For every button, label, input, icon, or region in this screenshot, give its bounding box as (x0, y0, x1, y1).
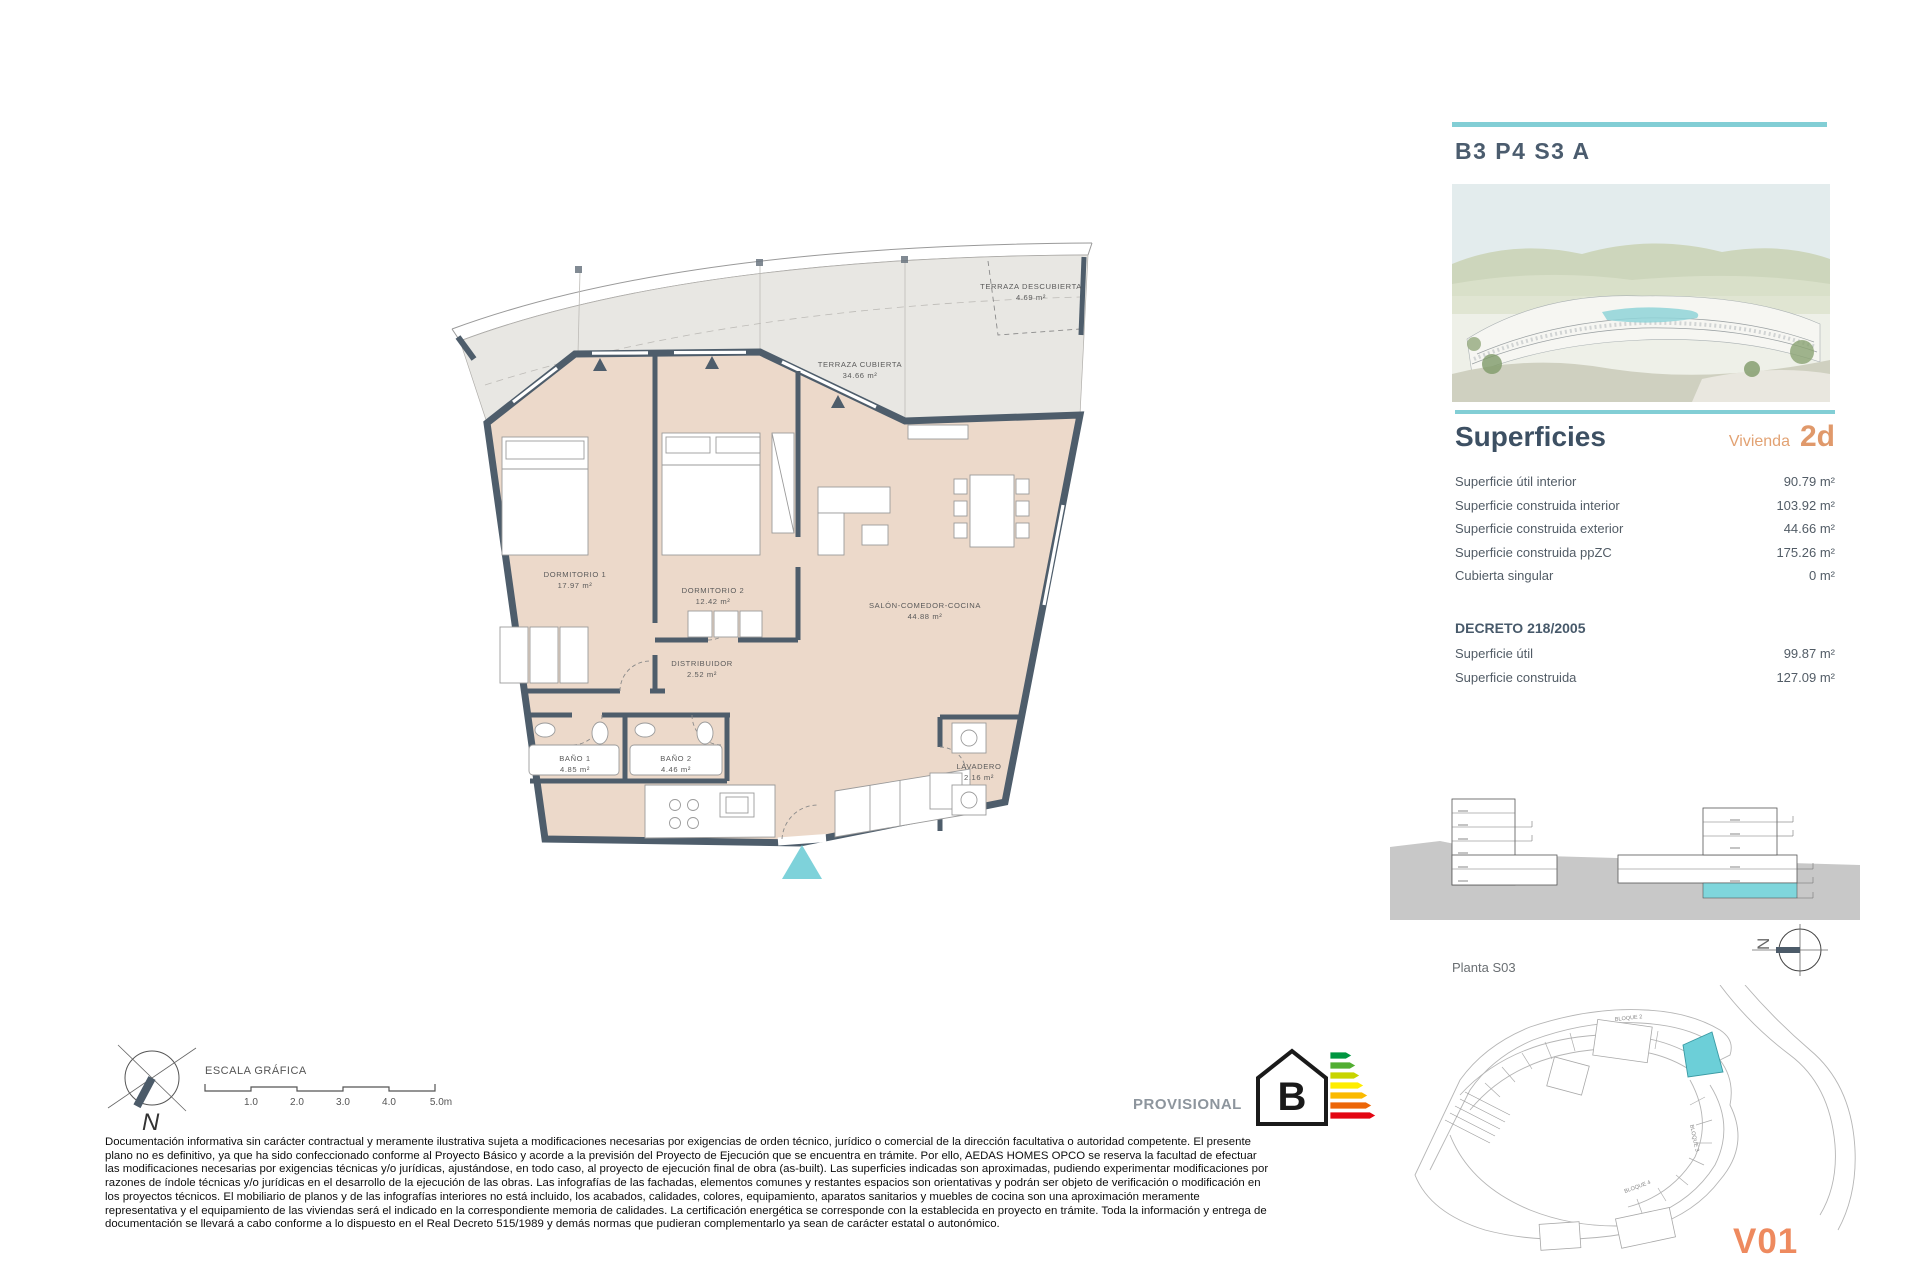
row-value: 99.87 m² (1784, 646, 1835, 670)
superficies-header: Superficies Vivienda 2d (1455, 420, 1835, 454)
disclaimer-line: los proyectos técnicos. El mobiliario de… (105, 1191, 1385, 1205)
scale-tick: 3.0 (336, 1097, 350, 1108)
building-section-diagram (1390, 785, 1860, 920)
site-compass: N (1740, 922, 1835, 984)
table-row: Superficie útil 99.87 m² (1455, 646, 1835, 670)
scale-tick: 2.0 (290, 1097, 304, 1108)
floor-level-label: Planta S03 (1452, 960, 1516, 975)
table-row: Superficie construida exterior 44.66 m² (1455, 521, 1835, 545)
row-value: 175.26 m² (1776, 545, 1835, 569)
room-label-dormitorio-2: DORMITORIO 2 (682, 586, 745, 595)
plan-sheet-page: { "colors": { "teal_accent": "#82ced5", … (0, 0, 1920, 1280)
room-label-bano-1: BAÑO 1 (559, 754, 590, 763)
north-letter: N (142, 1109, 160, 1135)
row-label: Superficie útil interior (1455, 474, 1576, 498)
room-area-salon: 44.88 m² (908, 612, 943, 621)
plan-compass: N (100, 1040, 210, 1135)
row-label: Superficie construida (1455, 670, 1576, 694)
row-value: 0 m² (1809, 568, 1835, 592)
row-label: Superficie construida exterior (1455, 521, 1623, 545)
superficies-title: Superficies (1455, 421, 1606, 453)
room-label-salon: SALÓN-COMEDOR-COCINA (869, 601, 981, 610)
energy-rating-bars (1330, 1052, 1376, 1119)
superficies-accent-bar (1455, 410, 1835, 414)
compass-needle (1776, 947, 1800, 953)
compass-north-letter: N (1754, 938, 1773, 950)
disclaimer-line: Documentación informativa sin carácter c… (105, 1136, 1385, 1150)
row-value: 44.66 m² (1784, 521, 1835, 545)
room-area-terraza-cubierta: 34.66 m² (843, 371, 878, 380)
room-area-bano-2: 4.46 m² (661, 765, 691, 774)
disclaimer-line: las modificaciones necesarias por exigen… (105, 1163, 1385, 1177)
room-area-distribuidor: 2.52 m² (687, 670, 717, 679)
energy-certificate-icon: B (1248, 1044, 1383, 1129)
unit-code-title: B3 P4 S3 A (1455, 138, 1591, 165)
block-label-2: BLOQUE 2 (1615, 1014, 1643, 1023)
decreto-table: Superficie útil 99.87 m² Superficie cons… (1455, 646, 1835, 693)
row-value: 127.09 m² (1776, 670, 1835, 694)
energy-rating-letter: B (1278, 1075, 1307, 1119)
sheet-version-code: V01 (1733, 1222, 1798, 1262)
room-label-distribuidor: DISTRIBUIDOR (671, 659, 733, 668)
room-area-dormitorio-2: 12.42 m² (696, 597, 731, 606)
provisional-label: PROVISIONAL (1133, 1096, 1242, 1113)
room-area-bano-1: 4.85 m² (560, 765, 590, 774)
disclaimer-line: representativa y el equipamiento de las … (105, 1205, 1385, 1219)
table-row: Superficie construida interior 103.92 m² (1455, 498, 1835, 522)
block-label-3: BLOQUE 3 (1688, 1124, 1700, 1152)
highlighted-floor-s03 (1703, 883, 1797, 898)
scale-tick: 1.0 (244, 1097, 258, 1108)
row-label: Superficie construida ppZC (1455, 545, 1612, 569)
table-row: Superficie útil interior 90.79 m² (1455, 474, 1835, 498)
block-label-4: BLOQUE 4 (1624, 1180, 1652, 1195)
table-row: Superficie construida 127.09 m² (1455, 670, 1835, 694)
room-area-dormitorio-1: 17.97 m² (558, 581, 593, 590)
row-value: 103.92 m² (1776, 498, 1835, 522)
building-render-image (1452, 184, 1830, 402)
vivienda-type: 2d (1800, 420, 1835, 454)
disclaimer-line: documentación se llevará a cabo conforme… (105, 1218, 1385, 1232)
scale-tick: 5.0m (430, 1097, 452, 1108)
entrance-marker (782, 845, 822, 879)
room-label-lavadero: LAVADERO (956, 762, 1001, 771)
vivienda-label: Vivienda (1729, 433, 1790, 451)
row-value: 90.79 m² (1784, 474, 1835, 498)
compass-needle (133, 1076, 155, 1108)
floor-plan-drawing: TERRAZA CUBIERTA 34.66 m² TERRAZA DESCUB… (430, 225, 1130, 885)
disclaimer-line: plano no es definitivo, ya que ha sido c… (105, 1150, 1385, 1164)
row-label: Superficie construida interior (1455, 498, 1620, 522)
table-row: Cubierta singular 0 m² (1455, 568, 1835, 592)
row-label: Superficie útil (1455, 646, 1533, 670)
graphic-scale: ESCALA GRÁFICA 1.0 2.0 3.0 4.0 5.0m (195, 1058, 495, 1113)
room-area-terraza-descubierta: 4.69 m² (1016, 293, 1046, 302)
disclaimer-line: razones de índole técnicas y/o jurídicas… (105, 1177, 1385, 1191)
superficies-table: Superficie útil interior 90.79 m² Superf… (1455, 474, 1835, 592)
room-area-lavadero: 2.16 m² (964, 773, 994, 782)
room-label-dormitorio-1: DORMITORIO 1 (544, 570, 607, 579)
site-plan-drawing: BLOQUE 2 BLOQUE 3 BLOQUE 4 (1390, 985, 1880, 1277)
room-label-terraza-cubierta: TERRAZA CUBIERTA (818, 360, 903, 369)
scale-title: ESCALA GRÁFICA (205, 1064, 307, 1077)
scale-tick: 4.0 (382, 1097, 396, 1108)
decreto-title: DECRETO 218/2005 (1455, 620, 1585, 636)
legal-disclaimer: Documentación informativa sin carácter c… (105, 1136, 1385, 1232)
highlighted-unit (1683, 1032, 1723, 1077)
top-accent-bar (1452, 122, 1827, 127)
room-label-terraza-descubierta: TERRAZA DESCUBIERTA (980, 282, 1082, 291)
row-label: Cubierta singular (1455, 568, 1553, 592)
room-label-bano-2: BAÑO 2 (660, 754, 691, 763)
table-row: Superficie construida ppZC 175.26 m² (1455, 545, 1835, 569)
